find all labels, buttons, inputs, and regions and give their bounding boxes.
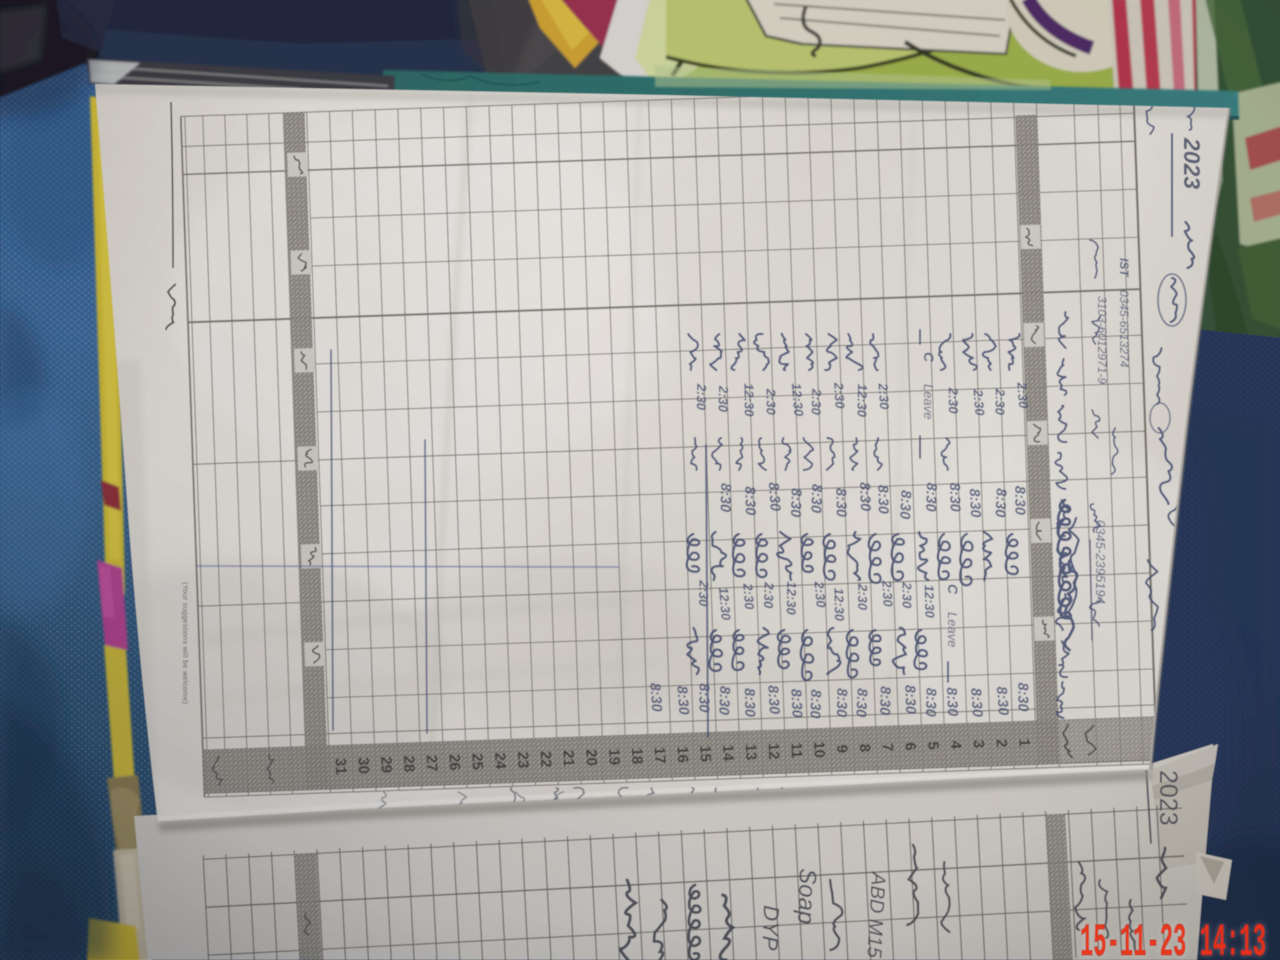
svg-text:15-11-23 14:13: 15-11-23 14:13 (1080, 917, 1266, 960)
